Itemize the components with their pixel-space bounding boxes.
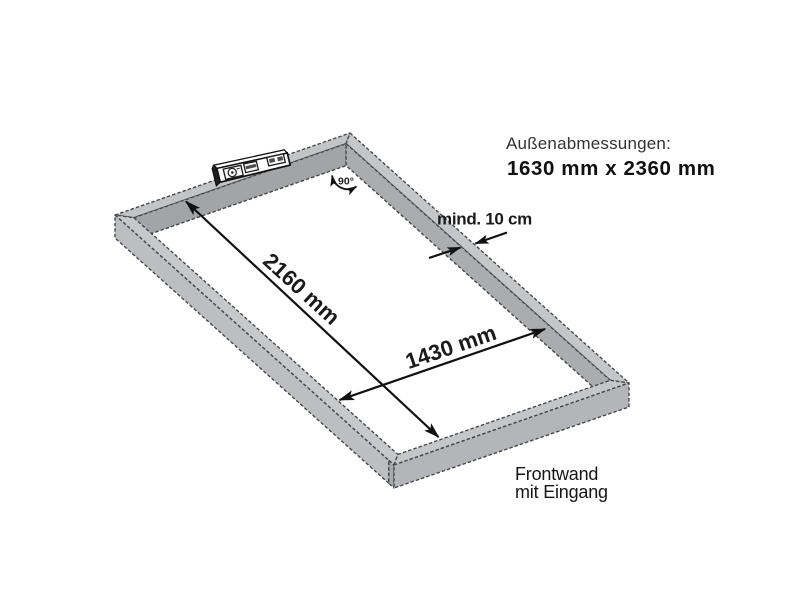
svg-text:mind. 10 cm: mind. 10 cm: [437, 210, 532, 229]
svg-text:1630 mm x 2360 mm: 1630 mm x 2360 mm: [507, 157, 716, 180]
svg-text:Außenabmessungen:: Außenabmessungen:: [506, 134, 671, 153]
svg-text:Frontwand: Frontwand: [515, 464, 598, 484]
svg-text:mit Eingang: mit Eingang: [515, 482, 608, 502]
svg-text:90°: 90°: [338, 176, 354, 188]
